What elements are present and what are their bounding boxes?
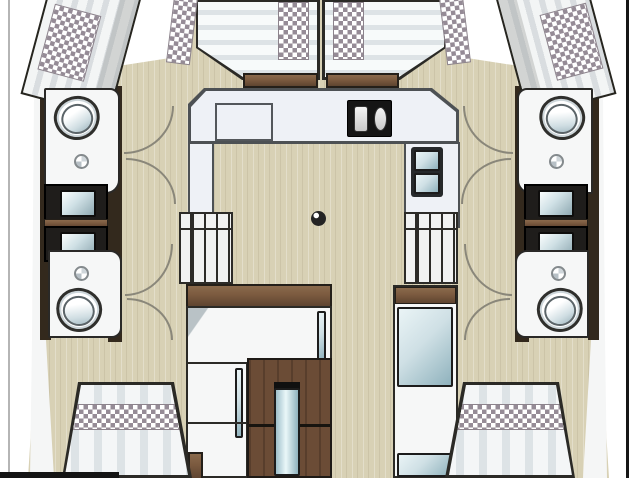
shower-drain: [74, 266, 89, 281]
forward-head-right: [517, 88, 593, 194]
shower-drain: [74, 154, 89, 169]
aft-seat-back-panel: [186, 306, 332, 364]
aft-panel-glass-strip: [317, 311, 326, 361]
vanity-unit-left-fwd: [44, 184, 108, 222]
toilet: [533, 284, 587, 337]
stove-burner: [374, 107, 387, 131]
floorplan-canvas: [0, 0, 637, 478]
vanity-sink: [538, 190, 574, 217]
cabinet-glass-strip: [235, 368, 243, 438]
cabinet-divider: [188, 422, 246, 424]
sink-basin: [414, 173, 440, 194]
aft-berth-left-checker-band: [60, 404, 192, 430]
aft-cabinet-top: [186, 284, 332, 308]
forward-seat-left-pillow: [278, 2, 309, 60]
window-glass-upper: [397, 307, 453, 387]
staircase-right-hull: [404, 212, 458, 284]
staircase-left-hull: [179, 212, 233, 284]
bow-berth-right-checker-mattress: [540, 3, 604, 81]
toilet: [52, 284, 106, 337]
forward-seat-left: [196, 0, 320, 80]
aft-head-left: [48, 250, 122, 338]
forward-head-left: [44, 88, 120, 194]
galley-stove: [347, 100, 392, 137]
aft-berth-right: [441, 380, 581, 478]
forward-seat-right-pillow: [333, 2, 364, 60]
shower-drain: [551, 266, 566, 281]
galley-double-sink: [411, 147, 443, 197]
sink-basin: [414, 150, 440, 171]
aft-head-right: [515, 250, 589, 338]
cockpit-table-right: [326, 73, 399, 88]
forward-seat-right: [322, 0, 446, 80]
counter-hatch-outline: [215, 103, 273, 141]
crop-bar-bottom-left: [0, 472, 119, 478]
shower-drain: [549, 154, 564, 169]
stove-burner: [354, 106, 368, 132]
toilet: [49, 91, 105, 145]
toilet: [534, 91, 590, 145]
bow-berth-left-checker-mattress: [37, 4, 101, 82]
aft-entry-door: [247, 358, 332, 478]
cockpit-table-left: [243, 73, 318, 88]
window-unit-wood-band: [395, 287, 456, 304]
aft-berth-left: [56, 380, 196, 478]
floor-table-fitting: [311, 211, 326, 226]
aft-berth-right-checker-band: [445, 404, 577, 430]
vanity-sink: [60, 190, 96, 217]
door-glass-slit: [274, 388, 300, 476]
vanity-unit-right-fwd: [524, 184, 588, 222]
